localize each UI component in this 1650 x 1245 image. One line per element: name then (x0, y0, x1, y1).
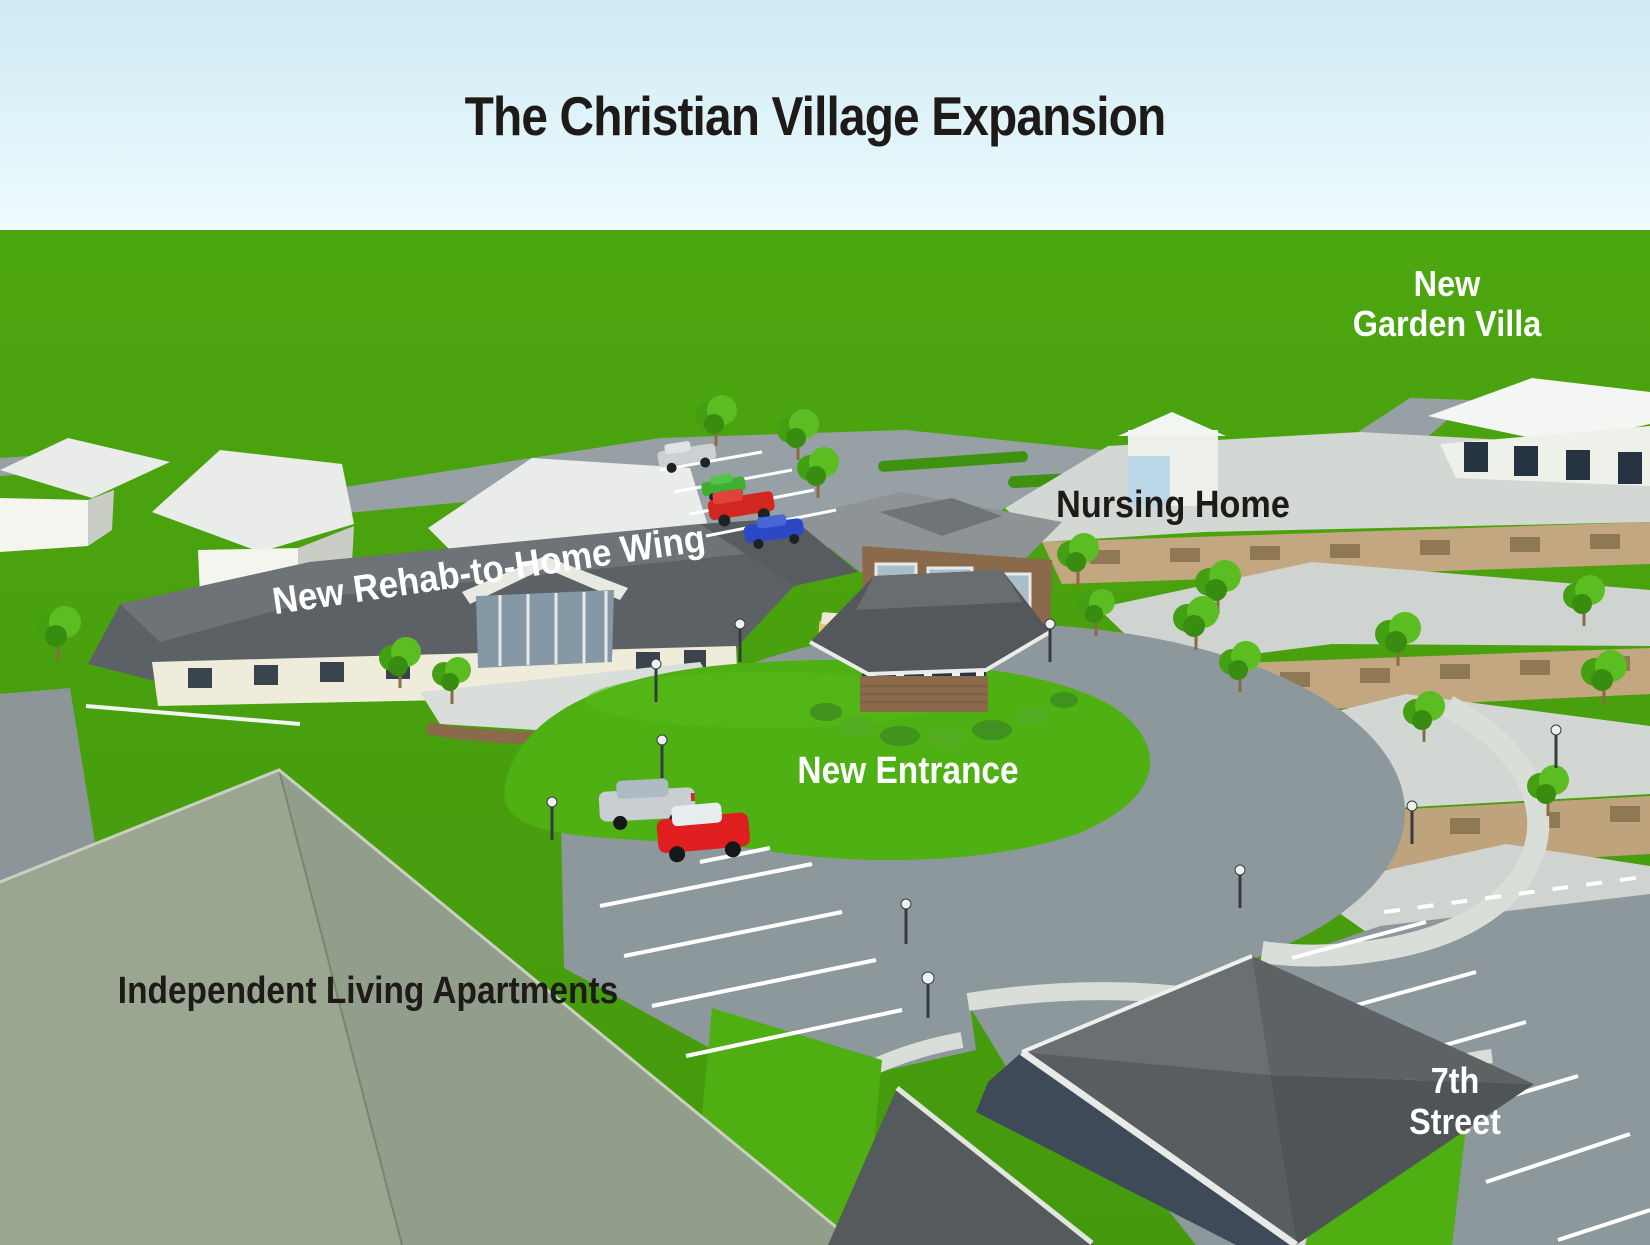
seventh-street-label: 7th Street (1409, 1060, 1501, 1142)
garden-villa-label-line2: Garden Villa (1353, 304, 1541, 344)
seventh-street-label-line1: 7th (1409, 1060, 1501, 1101)
garden-villa-label: New Garden Villa (1353, 264, 1541, 344)
entry-glass (476, 590, 614, 668)
new-entrance-label: New Entrance (797, 750, 1018, 793)
seventh-street-label-line2: Street (1409, 1101, 1501, 1142)
rendering-canvas: The Christian Village Expansion New Gard… (0, 0, 1650, 1245)
independent-living-label: Independent Living Apartments (118, 970, 618, 1013)
nursing-home-label: Nursing Home (1056, 484, 1290, 527)
garden-villa-label-line1: New (1353, 264, 1541, 304)
page-title: The Christian Village Expansion (465, 84, 1166, 148)
site-rendering (0, 0, 1650, 1245)
